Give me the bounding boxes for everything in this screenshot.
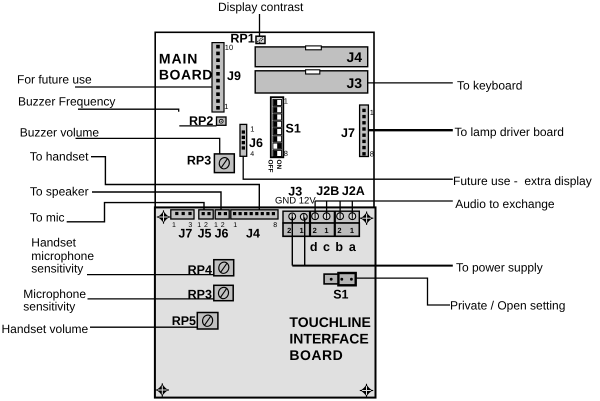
svg-text:J2B: J2B: [316, 184, 339, 198]
svg-text:BOARD: BOARD: [289, 347, 343, 363]
svg-text:J5: J5: [198, 226, 212, 240]
svg-text:1: 1: [350, 226, 354, 235]
svg-text:1: 1: [300, 226, 304, 235]
svg-text:J6: J6: [249, 136, 263, 150]
svg-text:S1: S1: [286, 122, 301, 136]
svg-text:To handset: To handset: [30, 149, 89, 163]
svg-text:RP3: RP3: [188, 288, 212, 302]
svg-text:2: 2: [313, 226, 317, 235]
svg-text:Buzzer Frequency: Buzzer Frequency: [18, 95, 115, 109]
svg-text:10: 10: [225, 43, 233, 52]
svg-text:d: d: [310, 240, 318, 254]
svg-text:c: c: [323, 240, 330, 254]
svg-text:RP1: RP1: [230, 32, 254, 46]
svg-text:Buzzer volume: Buzzer volume: [20, 125, 100, 139]
svg-text:RP4: RP4: [188, 263, 212, 277]
svg-text:b: b: [335, 240, 343, 254]
svg-text:1: 1: [324, 226, 328, 235]
svg-text:OFF: OFF: [267, 160, 274, 173]
svg-text:sensitivity: sensitivity: [23, 299, 75, 313]
svg-text:1: 1: [284, 96, 288, 105]
svg-text:GND 12V: GND 12V: [275, 196, 316, 207]
svg-text:For future use: For future use: [17, 73, 92, 87]
svg-text:1: 1: [250, 124, 254, 133]
svg-text:J9: J9: [227, 69, 241, 83]
svg-text:J7: J7: [178, 226, 192, 240]
svg-text:ON: ON: [275, 160, 282, 170]
svg-text:MAIN: MAIN: [159, 50, 198, 66]
svg-text:J4: J4: [347, 49, 363, 65]
svg-text:RP3: RP3: [187, 154, 211, 168]
svg-text:2: 2: [337, 226, 341, 235]
svg-text:J6: J6: [215, 226, 229, 240]
svg-text:Handset: Handset: [31, 235, 76, 249]
svg-text:1: 1: [233, 222, 237, 229]
svg-text:J4: J4: [246, 226, 260, 240]
svg-text:J3: J3: [347, 75, 363, 91]
svg-text:Display contrast: Display contrast: [218, 0, 304, 14]
svg-text:Handset volume: Handset volume: [2, 322, 89, 336]
svg-text:Audio to exchange: Audio to exchange: [455, 197, 555, 211]
svg-text:1: 1: [172, 222, 176, 229]
svg-text:8: 8: [284, 149, 288, 158]
svg-text:8: 8: [370, 149, 374, 158]
svg-text:S1: S1: [333, 288, 348, 302]
svg-text:To speaker: To speaker: [30, 184, 89, 198]
svg-text:TOUCHLINE: TOUCHLINE: [289, 314, 370, 330]
svg-text:1: 1: [224, 102, 228, 111]
svg-text:1: 1: [370, 108, 374, 117]
svg-text:To lamp driver board: To lamp driver board: [455, 125, 564, 139]
svg-text:RP5: RP5: [172, 314, 196, 328]
svg-text:To keyboard: To keyboard: [457, 79, 522, 93]
svg-text:Private / Open setting: Private / Open setting: [450, 299, 565, 313]
svg-text:INTERFACE: INTERFACE: [289, 331, 368, 347]
svg-text:To power supply: To power supply: [456, 260, 543, 274]
svg-text:a: a: [349, 240, 357, 254]
svg-text:8: 8: [273, 222, 277, 229]
svg-text:J2A: J2A: [342, 184, 365, 198]
svg-text:2: 2: [287, 226, 291, 235]
svg-text:J7: J7: [341, 126, 355, 140]
svg-text:To mic: To mic: [30, 211, 65, 225]
svg-text:Future use - extra display: Future use - extra display: [453, 174, 592, 188]
svg-text:microphone: microphone: [31, 249, 94, 263]
svg-text:BOARD: BOARD: [159, 67, 213, 83]
svg-text:sensitivity: sensitivity: [31, 262, 83, 276]
svg-text:4: 4: [250, 151, 254, 158]
